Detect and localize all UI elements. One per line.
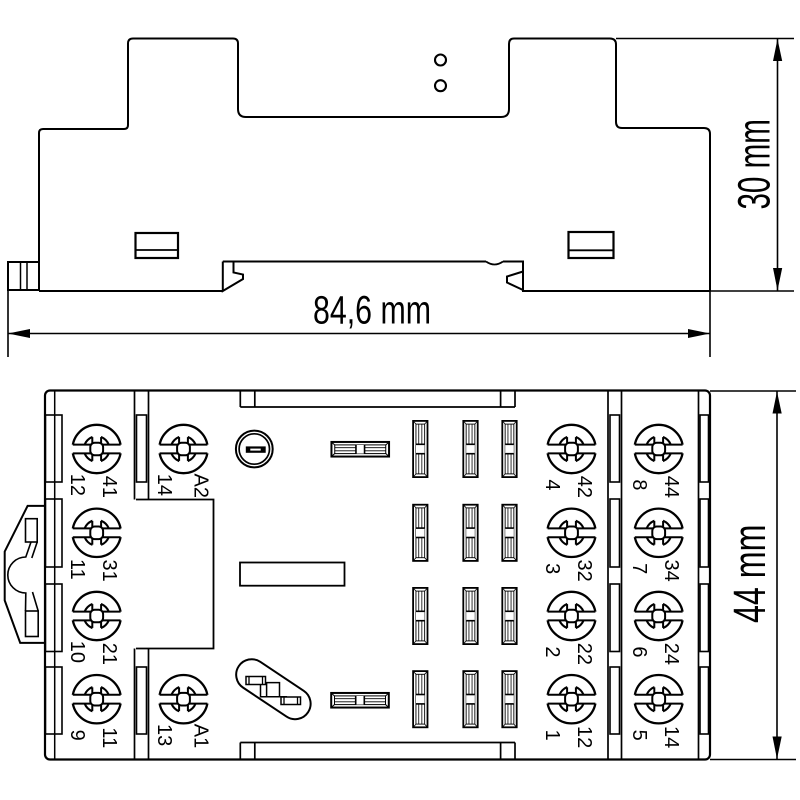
- svg-text:11: 11: [98, 727, 120, 748]
- svg-text:3: 3: [541, 563, 563, 574]
- svg-text:9: 9: [66, 730, 88, 741]
- svg-text:32: 32: [573, 560, 595, 582]
- svg-text:44: 44: [660, 476, 682, 498]
- svg-text:44 mm: 44 mm: [724, 525, 775, 624]
- svg-text:13: 13: [153, 724, 175, 746]
- svg-text:14: 14: [153, 474, 175, 496]
- svg-text:22: 22: [573, 643, 595, 665]
- svg-text:8: 8: [628, 479, 650, 490]
- svg-text:21: 21: [98, 643, 120, 665]
- svg-text:1: 1: [541, 730, 563, 741]
- svg-text:4: 4: [541, 479, 563, 490]
- svg-text:12: 12: [66, 474, 88, 496]
- svg-text:42: 42: [573, 476, 595, 498]
- svg-text:14: 14: [660, 726, 682, 748]
- svg-text:31: 31: [98, 560, 120, 582]
- svg-text:30 mm: 30 mm: [729, 119, 780, 210]
- svg-text:24: 24: [660, 643, 682, 665]
- svg-text:5: 5: [628, 730, 650, 741]
- svg-text:7: 7: [628, 563, 650, 574]
- svg-text:2: 2: [541, 646, 563, 657]
- svg-text:41: 41: [98, 476, 120, 498]
- svg-text:A2: A2: [190, 474, 212, 498]
- svg-text:A1: A1: [190, 724, 212, 748]
- svg-text:12: 12: [573, 726, 595, 748]
- svg-text:34: 34: [660, 560, 682, 582]
- svg-text:10: 10: [66, 641, 88, 663]
- svg-text:6: 6: [628, 646, 650, 657]
- svg-text:11: 11: [66, 559, 88, 580]
- svg-text:84,6 mm: 84,6 mm: [313, 289, 431, 333]
